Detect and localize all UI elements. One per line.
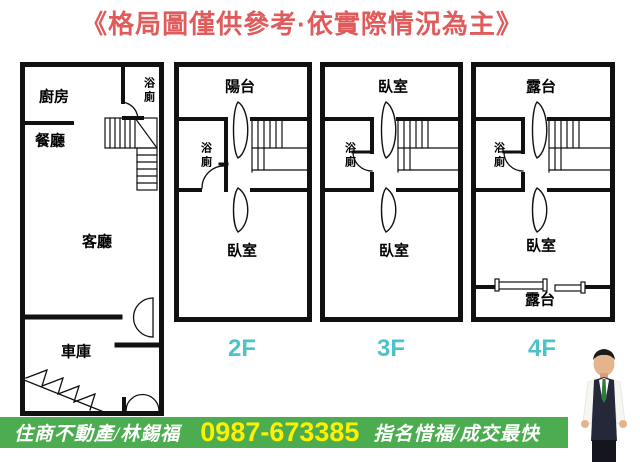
- room-label-balcony-2f: 陽台: [225, 81, 255, 96]
- room-label-bedroom-3f-top: 臥室: [378, 81, 408, 96]
- garage-ramp: [24, 370, 104, 412]
- room-label-bedroom-3f-bottom: 臥室: [379, 245, 409, 260]
- room-label-bath-1f: 浴廁: [143, 77, 154, 105]
- room-label-kitchen: 廚房: [39, 91, 69, 106]
- door-leaf-top: [382, 102, 396, 158]
- phone-number: 0987-673385: [200, 417, 359, 448]
- room-label-living: 客廳: [82, 236, 112, 251]
- bathroom-door-arc: [123, 102, 138, 118]
- floor-label-4f: 4F: [528, 335, 556, 363]
- floor-label-3f: 3F: [377, 335, 405, 363]
- sliding-window-symbol: [495, 279, 585, 293]
- floorplan-panel-2f: [174, 62, 312, 322]
- agent-hand-left: [581, 420, 589, 428]
- room-label-garage: 車庫: [61, 346, 91, 361]
- floorplan-panel-4f: [471, 62, 615, 322]
- stairs: [398, 119, 458, 172]
- inner-door-arc: [134, 298, 154, 337]
- footer-tagline: 指名惜福/成交最快: [373, 419, 539, 446]
- room-label-bath-2f: 浴廁: [200, 142, 211, 170]
- door-leaf-top: [234, 102, 248, 158]
- entry-door-arc: [126, 395, 159, 412]
- agent-photo-graphic: [568, 344, 640, 462]
- floorplan-panel-3f: [320, 62, 463, 322]
- room-label-dining: 餐廳: [35, 135, 65, 150]
- agent-trousers: [592, 440, 616, 462]
- room-label-bedroom-4f: 臥室: [526, 240, 556, 255]
- footer-banner: 住商不動產/林錫福 0987-673385 指名惜福/成交最快: [0, 417, 640, 448]
- agent-hand-right: [619, 420, 627, 428]
- agent-photo: [568, 344, 640, 462]
- stairs: [549, 119, 610, 172]
- stairs: [252, 119, 307, 172]
- disclaimer-title: 《格局圖僅供參考·依實際情況為主》: [0, 4, 622, 41]
- floorplan-image: 《格局圖僅供參考·依實際情況為主》: [0, 0, 640, 462]
- room-label-bedroom-2f: 臥室: [227, 245, 257, 260]
- door-leaf-top: [533, 102, 547, 158]
- agency-name: 住商不動產/林錫福: [14, 419, 180, 446]
- room-label-terrace-4f-top: 露台: [526, 81, 556, 96]
- room-label-terrace-4f-bottom: 露台: [525, 294, 555, 309]
- room-label-bath-4f: 浴廁: [493, 142, 504, 170]
- door-leaf-bottom: [382, 188, 396, 232]
- door-leaf-bottom: [234, 188, 248, 232]
- bathroom-door-arc: [353, 152, 372, 171]
- stairs-lower-run: [137, 148, 157, 190]
- bathroom-door-arc: [504, 152, 523, 171]
- floor-label-2f: 2F: [228, 335, 256, 363]
- door-leaf-bottom: [533, 188, 547, 232]
- stairs-upper-run: [105, 118, 157, 148]
- room-label-bath-3f: 浴廁: [344, 142, 355, 170]
